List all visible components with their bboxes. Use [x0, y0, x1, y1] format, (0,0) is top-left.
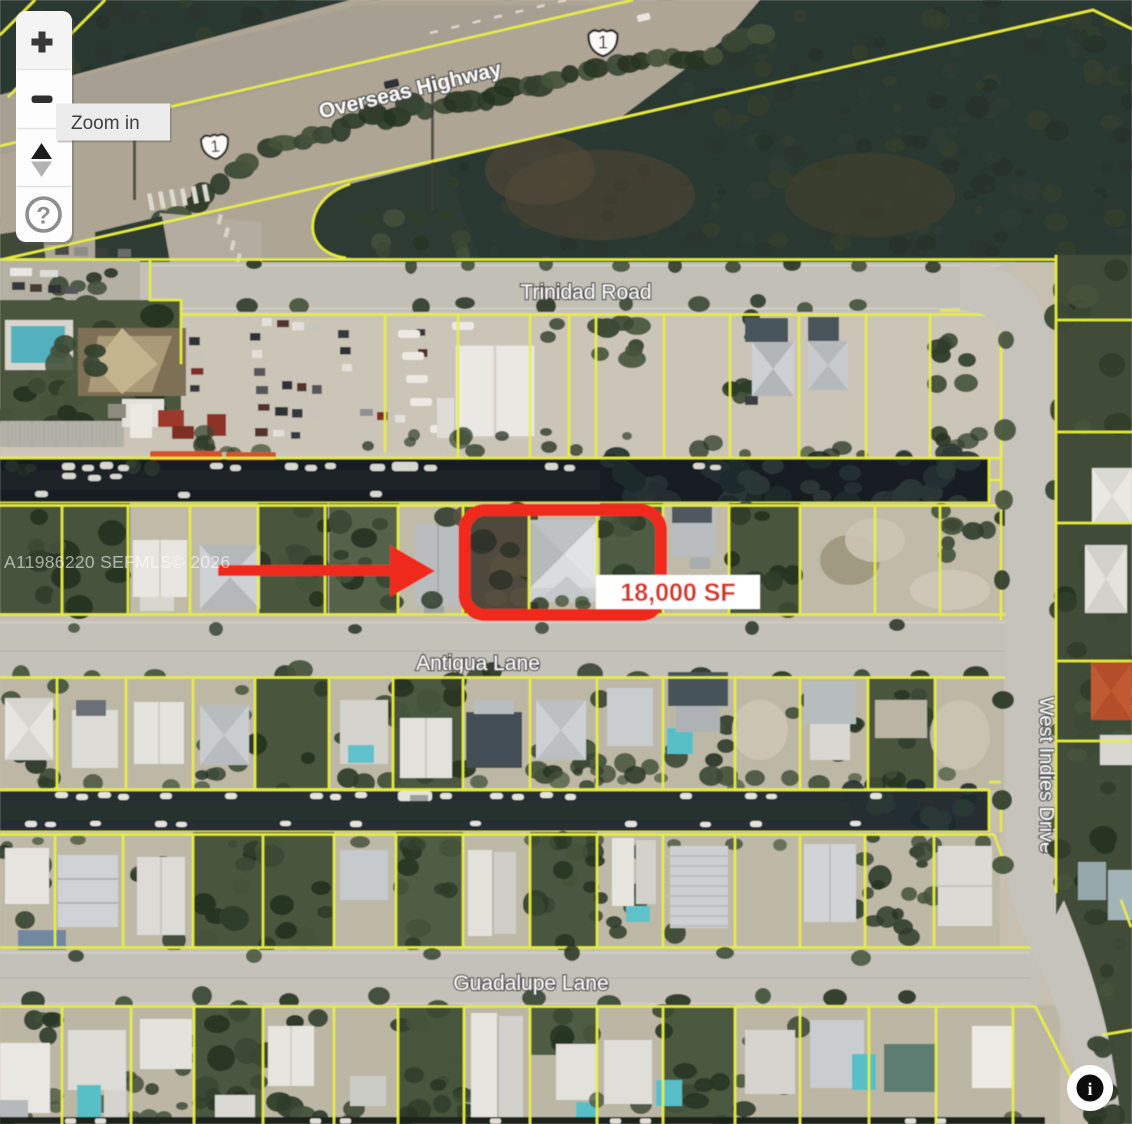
svg-text:West Indies Drive: West Indies Drive — [1035, 697, 1057, 853]
svg-text:18,000 SF: 18,000 SF — [620, 579, 735, 607]
svg-text:?: ? — [36, 203, 51, 230]
svg-text:Guadalupe Lane: Guadalupe Lane — [453, 972, 608, 995]
svg-text:A11986220 SEFMLS© 2026: A11986220 SEFMLS© 2026 — [4, 552, 230, 572]
svg-text:1: 1 — [210, 136, 221, 156]
svg-text:i: i — [1087, 1079, 1092, 1099]
svg-text:Antigua Lane: Antigua Lane — [416, 652, 540, 675]
svg-text:Zoom in: Zoom in — [71, 113, 140, 134]
svg-text:1: 1 — [598, 33, 608, 53]
svg-text:Trinidad Road: Trinidad Road — [520, 281, 651, 304]
